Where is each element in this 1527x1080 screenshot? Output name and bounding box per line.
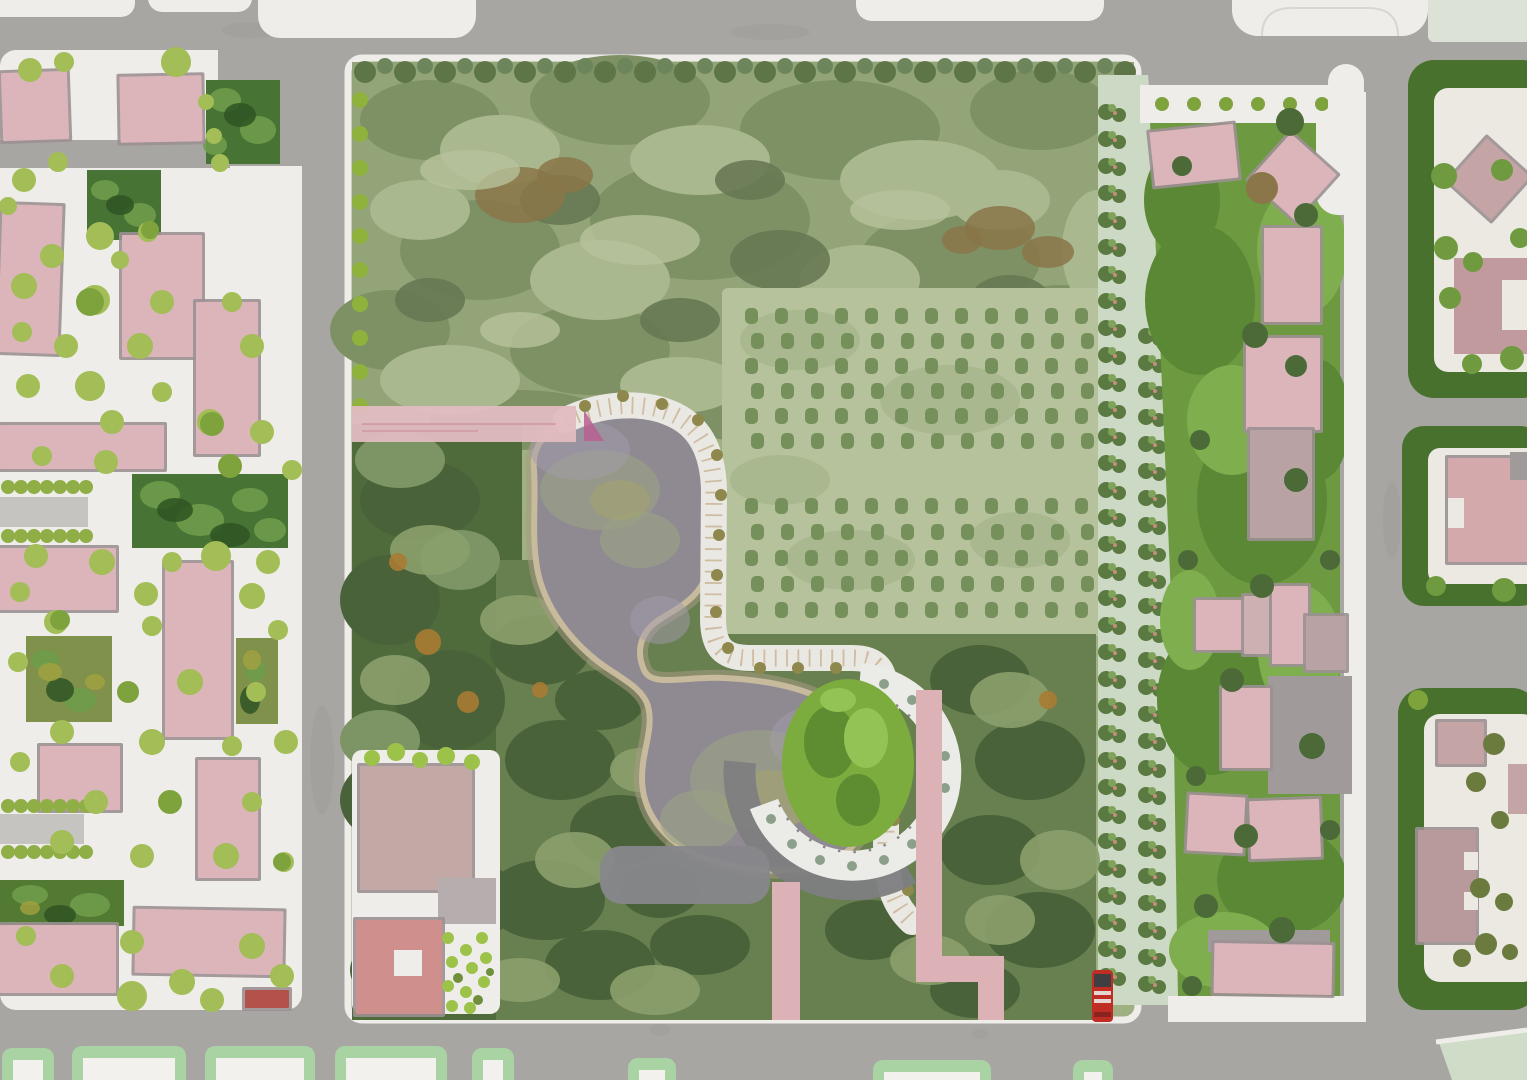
house — [1246, 338, 1320, 430]
mint-block-interior — [1084, 1072, 1102, 1080]
orchard-rows-lower — [985, 602, 998, 618]
orchard-rows-upper — [1075, 308, 1088, 324]
orchard-rows-upper — [835, 408, 848, 424]
lawn-trees — [1194, 894, 1218, 918]
allee-tree-column — [1153, 470, 1157, 474]
garden-yellow — [85, 674, 105, 690]
street-trees — [12, 168, 36, 192]
orchard-rows-upper — [841, 383, 854, 399]
park — [330, 55, 1186, 1020]
allee-tree-column — [1108, 266, 1116, 274]
parking-tree-row — [79, 480, 93, 494]
farm-garden-trees — [446, 1000, 458, 1012]
road-smudges — [310, 705, 334, 815]
street-trees — [11, 273, 37, 299]
orchard-rows-upper — [781, 433, 794, 449]
garden-yellow — [20, 901, 40, 915]
allee-tree-column — [1108, 752, 1116, 760]
street-trees — [84, 790, 108, 814]
lawn-trees — [1284, 468, 1308, 492]
street-trees — [270, 964, 294, 988]
truck-stripe — [1094, 999, 1111, 1003]
west-edge-trees — [352, 296, 368, 312]
court-trees — [1453, 949, 1471, 967]
allee-tree-column — [1113, 273, 1117, 277]
allee-tree-column — [1113, 543, 1117, 547]
allee-tree-column — [1113, 651, 1117, 655]
farm-notch — [394, 950, 422, 976]
court-trees — [1439, 287, 1461, 309]
orchard-rows-upper — [895, 358, 908, 374]
north-edge-trees — [954, 61, 976, 83]
street-trees — [24, 544, 48, 568]
orchard-rows-lower — [925, 498, 938, 514]
allee-tree-column — [1153, 983, 1157, 987]
street-trees — [117, 981, 147, 1011]
orchard-rows-lower — [1045, 498, 1058, 514]
orchard-rows-upper — [1021, 433, 1034, 449]
allee-tree-column — [1108, 104, 1116, 112]
south-path-pink — [916, 690, 942, 958]
orchard-rows-upper — [1015, 408, 1028, 424]
parking-tree-row — [53, 529, 67, 543]
street-trees — [198, 94, 214, 110]
allee-tree-column — [1153, 524, 1157, 528]
house — [1196, 600, 1248, 650]
orchard-rows-upper — [895, 408, 908, 424]
north-edge-trees — [554, 61, 576, 83]
woodland-deep — [640, 298, 720, 342]
court-roof — [1510, 452, 1527, 480]
orchard-rows-upper — [955, 408, 968, 424]
west-edge-trees — [352, 330, 368, 346]
orchard-rows-lower — [955, 602, 968, 618]
orchard-rows-upper — [901, 433, 914, 449]
orchard-rows-lower — [1081, 576, 1094, 592]
court-trees — [1475, 933, 1497, 955]
boardwalk-trees — [656, 398, 668, 410]
court-house-notch — [1448, 498, 1464, 528]
court-trees — [1434, 236, 1458, 260]
allee-tree-column — [1113, 381, 1117, 385]
court-trees — [1491, 159, 1513, 181]
farm-garden-trees — [364, 750, 380, 766]
truck-stripe — [1094, 991, 1111, 995]
woods-shadow — [975, 720, 1085, 800]
autumn-trees — [415, 629, 441, 655]
allee-tree-column — [1153, 389, 1157, 393]
parking-tree-row — [79, 529, 93, 543]
garden-yellow — [243, 650, 261, 670]
orchard-rows-upper — [925, 358, 938, 374]
woods-light — [970, 672, 1050, 728]
parking-strip — [0, 497, 88, 527]
allee-tree-column — [1113, 246, 1117, 250]
orchard-rows-lower — [901, 576, 914, 592]
promenade-trees — [766, 814, 776, 824]
water-algae — [600, 512, 680, 568]
street-trees — [10, 752, 30, 772]
orchard-rows-lower — [745, 498, 758, 514]
north-edge-trees — [497, 58, 513, 74]
street-trees-dark — [273, 853, 291, 871]
street-trees-dark — [218, 454, 242, 478]
allee-tree-column — [1153, 875, 1157, 879]
street-trees — [242, 792, 262, 812]
court-trees — [1426, 576, 1446, 596]
allee-tree-column — [1108, 482, 1116, 490]
road-smudges — [972, 1029, 988, 1039]
street-trees — [162, 552, 182, 572]
orchard-rows-upper — [805, 308, 818, 324]
street-trees — [250, 420, 274, 444]
plot — [0, 0, 135, 17]
allee-tree-column — [1148, 706, 1156, 714]
street-trees — [177, 669, 203, 695]
orchard-rows-upper — [1021, 383, 1034, 399]
woodland-deep — [730, 230, 830, 290]
orchard-rows-lower — [1075, 498, 1088, 514]
hedge-shadows — [46, 678, 74, 702]
lawn-trees — [1294, 203, 1318, 227]
orchard-rows-upper — [775, 308, 788, 324]
farm-garden-trees — [464, 754, 480, 770]
orchard-rows-upper — [931, 383, 944, 399]
lawn-trees — [1276, 108, 1304, 136]
orchard-rows-lower — [991, 524, 1004, 540]
parking-tree-row — [14, 529, 28, 543]
court-house — [1418, 830, 1476, 942]
parking-tree-row — [27, 845, 41, 859]
allee-tree-column — [1108, 563, 1116, 571]
mint-block-interior — [13, 1060, 43, 1080]
allee-tree-column — [1108, 725, 1116, 733]
allee-tree-column — [1148, 841, 1156, 849]
allee-tree-column — [1108, 671, 1116, 679]
green-plot — [1428, 0, 1527, 42]
street-trees — [239, 583, 265, 609]
orchard-rows-upper — [781, 383, 794, 399]
north-edge-trees — [354, 61, 376, 83]
orchard-rows-upper — [985, 358, 998, 374]
farm-garden-trees — [480, 952, 492, 964]
farm-garden-trees-dark — [453, 973, 463, 983]
north-edge-trees — [634, 61, 656, 83]
street-trees-dark — [117, 681, 139, 703]
allee-tree-column — [1108, 185, 1116, 193]
west-edge-trees — [352, 262, 368, 278]
allee-tree-column — [1113, 624, 1117, 628]
woodland-deep — [395, 278, 465, 322]
lawn-trees — [1299, 733, 1325, 759]
parking-tree-row — [14, 480, 28, 494]
orchard-rows-lower — [1021, 524, 1034, 540]
farm-garden-trees — [412, 752, 428, 768]
orchard-rows-lower — [805, 550, 818, 566]
woods-light — [610, 965, 700, 1015]
court-trees — [1431, 163, 1457, 189]
orchard-rows-upper — [811, 383, 824, 399]
mound-light — [844, 708, 888, 768]
orchard-rows-lower — [805, 602, 818, 618]
court-trees-lime — [1408, 690, 1428, 710]
allee-tree-column — [1113, 111, 1117, 115]
orchard-rows-lower — [991, 576, 1004, 592]
allee-tree-column — [1153, 794, 1157, 798]
orchard-rows-upper — [775, 358, 788, 374]
allee-tree-column — [1108, 914, 1116, 922]
lawn-trees — [1242, 322, 1268, 348]
parking-tree-row — [40, 480, 54, 494]
farm-garden-trees — [446, 956, 458, 968]
autumn-trees — [532, 682, 548, 698]
north-edge-trees — [834, 61, 856, 83]
allee-tree-column — [1153, 902, 1157, 906]
street-trees — [201, 541, 231, 571]
woodland-light-streaks — [420, 150, 520, 190]
orchard-rows-lower — [1021, 576, 1034, 592]
orchard-rows-upper — [745, 408, 758, 424]
orchard-rows-upper — [1051, 433, 1064, 449]
street-tree-row — [1155, 97, 1169, 111]
allee-tree-column — [1153, 443, 1157, 447]
mint-block-interior — [884, 1072, 980, 1080]
orchard-rows-lower — [871, 576, 884, 592]
allee-tree-column — [1148, 571, 1156, 579]
allee-tree-column — [1153, 713, 1157, 717]
masterplan-canvas — [0, 0, 1527, 1080]
orchard-rows-lower — [865, 498, 878, 514]
promenade-trees — [787, 839, 797, 849]
street-trees — [127, 333, 153, 359]
farm-garden-trees — [460, 986, 472, 998]
orchard-rows-upper — [961, 333, 974, 349]
allee-tree-column — [1148, 355, 1156, 363]
street-trees — [16, 374, 40, 398]
orchard-rows-upper — [745, 308, 758, 324]
allee-tree-column — [1113, 597, 1117, 601]
orchard-rows-lower — [1015, 498, 1028, 514]
allee-tree-column — [1108, 779, 1116, 787]
boardwalk-trees — [692, 414, 704, 426]
allee-tree-column — [1108, 212, 1116, 220]
parking-tree-row — [66, 480, 80, 494]
court-trees — [1491, 811, 1509, 829]
orchard-rows-upper — [931, 433, 944, 449]
court-house — [1508, 764, 1527, 814]
allee-tree-column — [1148, 625, 1156, 633]
hedge-shadows — [157, 498, 193, 522]
cross-building-wing — [1222, 688, 1270, 768]
allee-tree-column — [1113, 867, 1117, 871]
brown-tree — [1246, 172, 1278, 204]
court-trees — [1502, 944, 1518, 960]
water-sheen — [630, 596, 690, 644]
farm-building — [360, 766, 472, 890]
street-trees — [206, 128, 222, 144]
orchard-rows-lower — [835, 602, 848, 618]
street-trees — [12, 322, 32, 342]
allee-tree-column — [1113, 408, 1117, 412]
north-edge-trees — [794, 61, 816, 83]
north-edge-trees — [594, 61, 616, 83]
allee-tree-column — [1113, 705, 1117, 709]
orchard-rows-upper — [1081, 433, 1094, 449]
street-trees — [86, 222, 114, 250]
allee-tree-column — [1148, 652, 1156, 660]
allee-tree-column — [1148, 544, 1156, 552]
allee-tree-column — [1148, 976, 1156, 984]
allee-tree-column — [1153, 659, 1157, 663]
north-edge-trees — [1074, 61, 1096, 83]
allee-tree-column — [1113, 165, 1117, 169]
orchard-rows-lower — [745, 550, 758, 566]
north-edge-trees — [434, 61, 456, 83]
parking-tree-row — [40, 529, 54, 543]
woodland-brown — [1022, 236, 1074, 268]
boardwalk-trees — [754, 662, 766, 674]
street-trees — [169, 969, 195, 995]
orchard-rows-upper — [1051, 383, 1064, 399]
north-edge-trees — [657, 58, 673, 74]
farm-garden-trees — [466, 962, 478, 974]
north-edge-trees — [617, 58, 633, 74]
orchard-rows-upper — [751, 333, 764, 349]
building — [119, 75, 202, 142]
allee-tree-column — [1108, 347, 1116, 355]
street-trees — [32, 446, 52, 466]
woodland-brown — [942, 226, 982, 254]
hedge-highlights — [254, 518, 286, 542]
west-edge-trees — [352, 92, 368, 108]
allee-tree-column — [1108, 860, 1116, 868]
street-trees — [8, 652, 28, 672]
woods-light — [965, 895, 1035, 945]
woods-shadow — [505, 720, 615, 800]
orchard-rows-lower — [865, 550, 878, 566]
autumn-trees — [457, 691, 479, 713]
allee-tree-column — [1148, 868, 1156, 876]
allee-tree-column — [1108, 401, 1116, 409]
orchard-rows-upper — [985, 308, 998, 324]
orchard-rows-upper — [1045, 358, 1058, 374]
street-trees — [120, 930, 144, 954]
orchard-rows-upper — [865, 408, 878, 424]
allee-tree-column — [1113, 327, 1117, 331]
orchard-rows-lower — [931, 524, 944, 540]
north-edge-trees — [874, 61, 896, 83]
allee-tree-column — [1108, 320, 1116, 328]
parking-tree-row — [53, 799, 67, 813]
building — [1, 71, 69, 141]
orchard-rows-upper — [991, 383, 1004, 399]
lawn-trees — [1285, 355, 1307, 377]
allee-tree-column — [1108, 239, 1116, 247]
house — [1264, 228, 1320, 322]
orchard-rows-upper — [781, 333, 794, 349]
allee-tree-column — [1153, 929, 1157, 933]
street-trees — [222, 292, 242, 312]
allee-tree-column — [1108, 509, 1116, 517]
orchard-rows-lower — [1075, 550, 1088, 566]
parking-tree-row — [79, 845, 93, 859]
allee-tree-column — [1153, 578, 1157, 582]
truck-rear — [1094, 1012, 1111, 1017]
street-trees — [40, 244, 64, 268]
farm-garden-trees — [387, 743, 405, 761]
allee-tree-column — [1148, 382, 1156, 390]
street-trees — [213, 843, 239, 869]
parking-tree-row — [53, 480, 67, 494]
north-edge-trees — [1017, 58, 1033, 74]
orchard-rows-upper — [775, 408, 788, 424]
allee-tree-column — [1148, 760, 1156, 768]
north-edge-trees — [914, 61, 936, 83]
house — [1306, 616, 1346, 670]
mint-block-interior — [216, 1058, 304, 1080]
street-trees — [161, 47, 191, 77]
street-trees — [268, 620, 288, 640]
woodland-deep — [715, 160, 785, 200]
orchard-rows-lower — [985, 498, 998, 514]
allee-tree-column — [1113, 813, 1117, 817]
allee-tree-column — [1108, 374, 1116, 382]
orchard-rows-upper — [871, 333, 884, 349]
allee-tree-column — [1148, 598, 1156, 606]
orchard-rows-upper — [865, 358, 878, 374]
allee-tree-column — [1108, 698, 1116, 706]
orchard-rows-upper — [751, 433, 764, 449]
orchard-texture — [880, 365, 1020, 435]
north-edge-trees — [1034, 61, 1056, 83]
orchard-rows-upper — [961, 383, 974, 399]
court-trees — [1492, 578, 1516, 602]
west-edge-trees — [352, 228, 368, 244]
street-trees — [282, 460, 302, 480]
court-house — [1438, 722, 1484, 764]
masterplan-svg — [0, 0, 1527, 1080]
street-trees — [134, 582, 158, 606]
allee-tree-column — [1153, 740, 1157, 744]
south-path-pink — [772, 882, 800, 1020]
orchard-rows-upper — [751, 383, 764, 399]
sidewalk — [1168, 996, 1366, 1022]
lawn-trees — [1220, 668, 1244, 692]
allee-tree-column — [1148, 490, 1156, 498]
farm-garden-trees — [476, 932, 488, 944]
orchard-rows-lower — [835, 498, 848, 514]
street-trees — [111, 251, 129, 269]
street-trees — [130, 844, 154, 868]
allee-tree-column — [1113, 759, 1117, 763]
orchard-rows-upper — [1045, 308, 1058, 324]
autumn-trees — [1039, 691, 1057, 709]
orchard-rows-lower — [781, 576, 794, 592]
plot — [856, 0, 1104, 21]
north-edge-trees — [994, 61, 1016, 83]
orchard-rows-lower — [865, 602, 878, 618]
orchard-rows-upper — [1021, 333, 1034, 349]
orchard-rows-lower — [931, 576, 944, 592]
north-edge-trees — [857, 58, 873, 74]
north-edge-trees — [817, 58, 833, 74]
north-edge-trees — [777, 58, 793, 74]
north-edge-trees — [377, 58, 393, 74]
parking-tree-row — [14, 799, 28, 813]
parking-tree-row — [40, 799, 54, 813]
farm-annex — [438, 878, 496, 924]
woodland-pale — [380, 345, 520, 415]
